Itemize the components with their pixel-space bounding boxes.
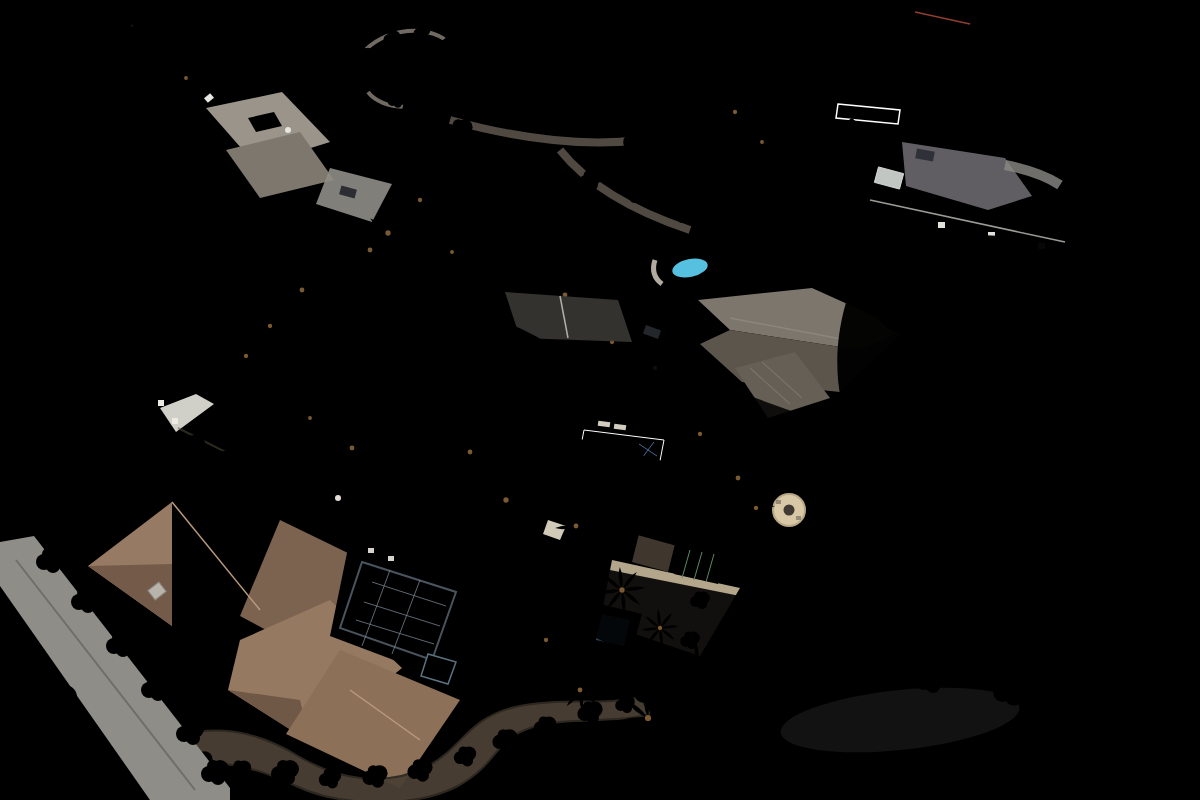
tree-highlight (1049, 420, 1101, 456)
deck-furniture (388, 556, 394, 561)
patio-chair (776, 500, 781, 504)
tree-canopy (1080, 464, 1160, 536)
flower-cluster (598, 208, 603, 213)
flower-cluster (307, 37, 313, 43)
tree-highlight (911, 270, 959, 306)
flower-cluster (517, 117, 523, 123)
aerial-photo (0, 0, 1200, 800)
patio-chair (796, 516, 801, 520)
gate-post (172, 418, 178, 424)
corner-roof (0, 60, 18, 88)
deck-furniture (368, 548, 374, 553)
firepit (784, 505, 795, 516)
skylight (285, 127, 291, 133)
flower-cluster (658, 238, 663, 243)
corner-pool (0, 30, 26, 56)
gate-post (158, 400, 164, 406)
tree-highlight (1071, 301, 1119, 335)
dormer (938, 222, 945, 228)
tree-canopy (1095, 350, 1185, 430)
skylight (335, 495, 341, 501)
dirt-mottle (860, 590, 1020, 630)
navy-vehicle (1177, 726, 1196, 750)
flower-cluster (697, 122, 703, 128)
tree-shadow (960, 732, 1100, 768)
tree-shadow (990, 356, 1090, 404)
tree-highlight (989, 250, 1041, 286)
